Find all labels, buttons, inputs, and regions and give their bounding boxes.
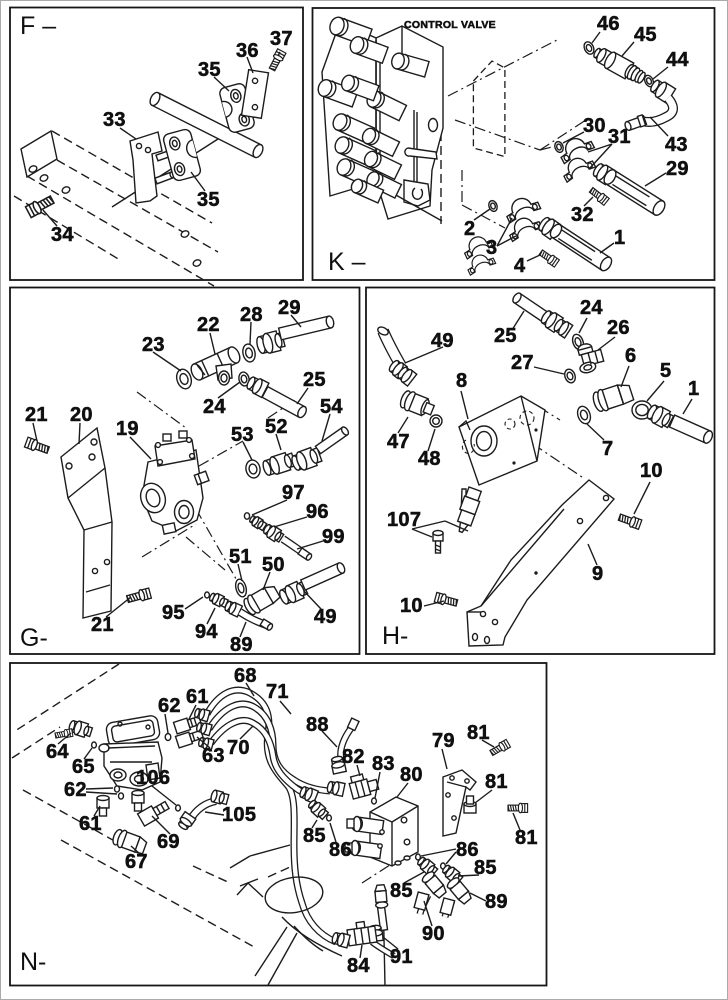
svg-text:24: 24: [580, 297, 603, 319]
svg-text:N-: N-: [20, 948, 46, 976]
svg-text:4: 4: [514, 255, 526, 277]
svg-text:83: 83: [372, 753, 395, 775]
svg-text:46: 46: [597, 13, 620, 35]
svg-text:95: 95: [162, 602, 185, 624]
svg-text:35: 35: [198, 59, 221, 81]
svg-text:3: 3: [486, 237, 497, 259]
svg-text:7: 7: [602, 438, 613, 460]
svg-text:105: 105: [222, 804, 256, 826]
svg-text:G-: G-: [20, 624, 48, 652]
svg-text:81: 81: [515, 827, 538, 849]
svg-text:CONTROL VALVE: CONTROL VALVE: [404, 19, 496, 31]
svg-text:88: 88: [306, 714, 329, 736]
svg-text:44: 44: [666, 49, 689, 71]
svg-text:80: 80: [400, 764, 423, 786]
svg-text:106: 106: [136, 767, 170, 789]
svg-text:89: 89: [485, 891, 508, 913]
svg-text:52: 52: [265, 416, 288, 438]
svg-text:10: 10: [400, 595, 423, 617]
svg-text:36: 36: [236, 40, 259, 62]
svg-text:30: 30: [583, 115, 606, 137]
svg-text:27: 27: [511, 352, 534, 374]
svg-text:F –: F –: [20, 12, 56, 40]
svg-text:84: 84: [347, 955, 370, 977]
svg-text:85: 85: [390, 880, 413, 902]
svg-text:37: 37: [270, 28, 293, 50]
svg-text:1: 1: [614, 227, 625, 249]
svg-text:29: 29: [278, 297, 301, 319]
svg-text:48: 48: [418, 448, 441, 470]
svg-text:65: 65: [72, 756, 95, 778]
svg-text:51: 51: [229, 546, 252, 568]
svg-text:26: 26: [607, 317, 630, 339]
svg-text:49: 49: [314, 606, 337, 628]
svg-text:68: 68: [234, 665, 257, 687]
svg-text:85: 85: [474, 857, 497, 879]
svg-text:53: 53: [231, 424, 254, 446]
svg-text:29: 29: [666, 158, 689, 180]
svg-text:61: 61: [186, 686, 209, 708]
svg-text:90: 90: [422, 923, 445, 945]
svg-text:47: 47: [387, 431, 410, 453]
svg-text:54: 54: [320, 396, 343, 418]
svg-text:25: 25: [494, 325, 517, 347]
svg-text:61: 61: [79, 813, 102, 835]
svg-text:70: 70: [227, 737, 250, 759]
svg-text:43: 43: [665, 134, 688, 156]
svg-text:2: 2: [464, 218, 475, 240]
svg-text:31: 31: [608, 126, 631, 148]
svg-text:10: 10: [640, 460, 663, 482]
svg-text:69: 69: [157, 831, 180, 853]
svg-text:64: 64: [46, 741, 69, 763]
svg-text:9: 9: [592, 563, 603, 585]
svg-text:K –: K –: [328, 248, 366, 276]
svg-text:5: 5: [660, 360, 671, 382]
svg-text:71: 71: [266, 681, 289, 703]
svg-text:67: 67: [125, 851, 148, 873]
svg-text:25: 25: [303, 369, 326, 391]
svg-text:62: 62: [158, 695, 181, 717]
svg-text:19: 19: [116, 418, 139, 440]
svg-text:99: 99: [322, 526, 345, 548]
svg-text:45: 45: [634, 24, 657, 46]
svg-text:79: 79: [432, 730, 455, 752]
svg-text:97: 97: [282, 482, 305, 504]
svg-text:86: 86: [329, 839, 352, 861]
svg-text:1: 1: [688, 378, 699, 400]
svg-text:107: 107: [387, 509, 421, 531]
svg-text:34: 34: [51, 224, 74, 246]
svg-text:8: 8: [456, 370, 467, 392]
svg-text:94: 94: [195, 621, 218, 643]
svg-text:49: 49: [431, 330, 454, 352]
svg-text:6: 6: [625, 345, 636, 367]
svg-text:23: 23: [142, 334, 165, 356]
svg-text:91: 91: [390, 946, 413, 968]
svg-text:22: 22: [197, 314, 220, 336]
svg-text:28: 28: [240, 304, 263, 326]
svg-text:85: 85: [303, 825, 326, 847]
svg-text:33: 33: [103, 109, 126, 131]
svg-text:89: 89: [230, 634, 253, 656]
svg-text:32: 32: [571, 204, 594, 226]
svg-text:H-: H-: [382, 622, 408, 650]
svg-text:21: 21: [91, 614, 114, 636]
svg-text:63: 63: [202, 745, 225, 767]
svg-text:62: 62: [64, 779, 87, 801]
svg-text:50: 50: [262, 554, 285, 576]
svg-text:96: 96: [306, 501, 329, 523]
svg-text:35: 35: [197, 189, 220, 211]
svg-text:81: 81: [467, 722, 490, 744]
svg-text:20: 20: [70, 404, 93, 426]
svg-text:82: 82: [342, 746, 365, 768]
svg-text:21: 21: [25, 404, 48, 426]
svg-text:81: 81: [485, 771, 508, 793]
svg-text:24: 24: [203, 396, 226, 418]
